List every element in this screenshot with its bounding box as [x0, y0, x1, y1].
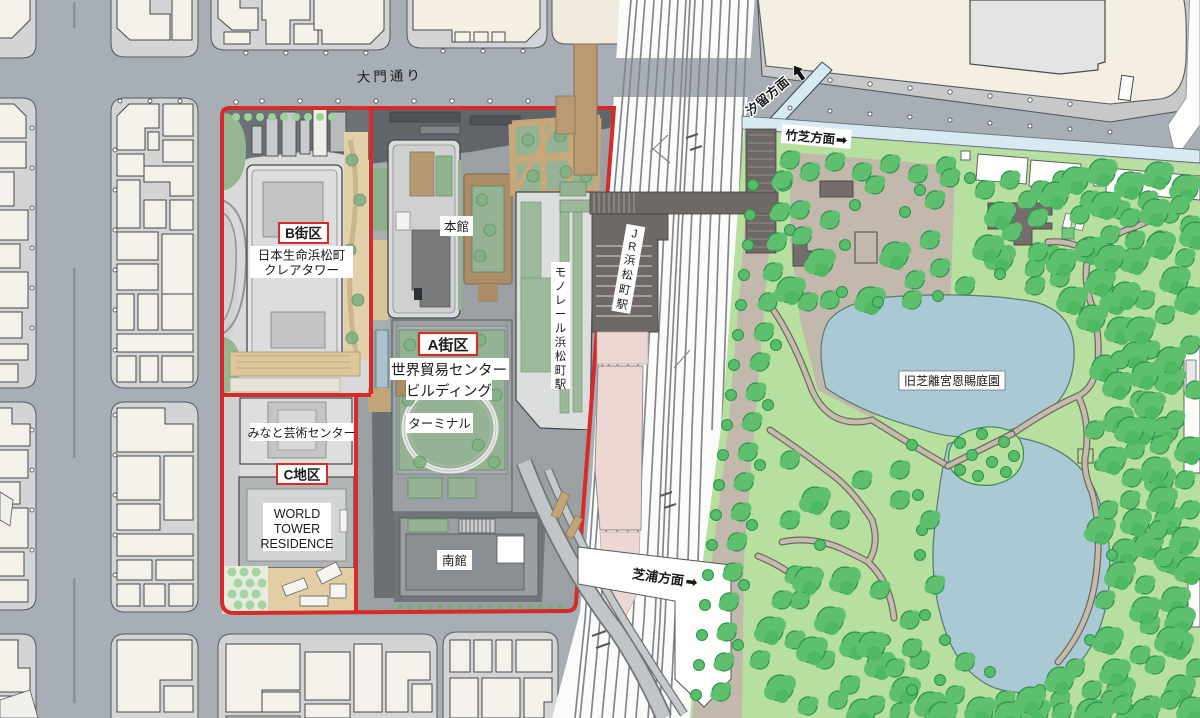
svg-text:ル: ル — [555, 323, 567, 335]
svg-text:B街区: B街区 — [285, 225, 322, 241]
svg-text:ビルディング: ビルディング — [406, 382, 492, 400]
svg-text:みなと芸術センター: みなと芸術センター — [247, 426, 355, 440]
svg-text:ターミナル: ターミナル — [408, 417, 471, 431]
svg-text:南館: 南館 — [442, 553, 467, 568]
svg-text:A街区: A街区 — [428, 336, 469, 354]
svg-text:モ: モ — [555, 267, 567, 279]
svg-text:WORLD: WORLD — [274, 507, 321, 521]
svg-text:レ: レ — [555, 295, 567, 307]
svg-text:TOWER: TOWER — [274, 522, 320, 536]
svg-text:C地区: C地区 — [284, 467, 321, 483]
svg-text:駅: 駅 — [555, 378, 567, 391]
svg-text:大門通り: 大門通り — [357, 68, 423, 85]
svg-text:世界貿易センター: 世界貿易センター — [391, 362, 507, 379]
svg-text:浜: 浜 — [555, 336, 567, 349]
svg-text:クレアタワー: クレアタワー — [264, 264, 339, 278]
svg-text:➡: ➡ — [835, 132, 847, 148]
svg-text:松: 松 — [555, 349, 567, 363]
svg-text:本館: 本館 — [444, 219, 469, 234]
svg-text:ー: ー — [555, 309, 567, 321]
svg-text:日本生命浜松町: 日本生命浜松町 — [258, 248, 346, 263]
svg-text:町: 町 — [555, 365, 567, 377]
svg-text:ノ: ノ — [555, 281, 567, 293]
svg-text:RESIDENCE: RESIDENCE — [261, 537, 334, 551]
svg-text:旧芝離宮恩賜庭園: 旧芝離宮恩賜庭園 — [904, 373, 1000, 388]
